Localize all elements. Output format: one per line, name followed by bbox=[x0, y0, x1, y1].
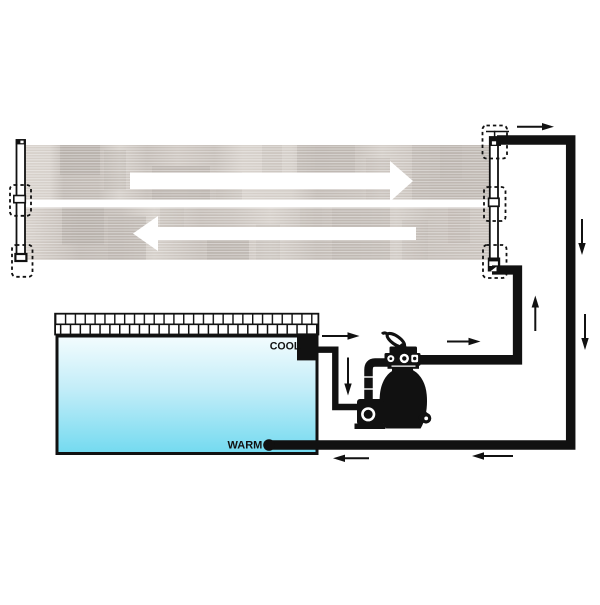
svg-text:COOL: COOL bbox=[270, 340, 301, 352]
svg-text:WARM: WARM bbox=[227, 439, 262, 451]
